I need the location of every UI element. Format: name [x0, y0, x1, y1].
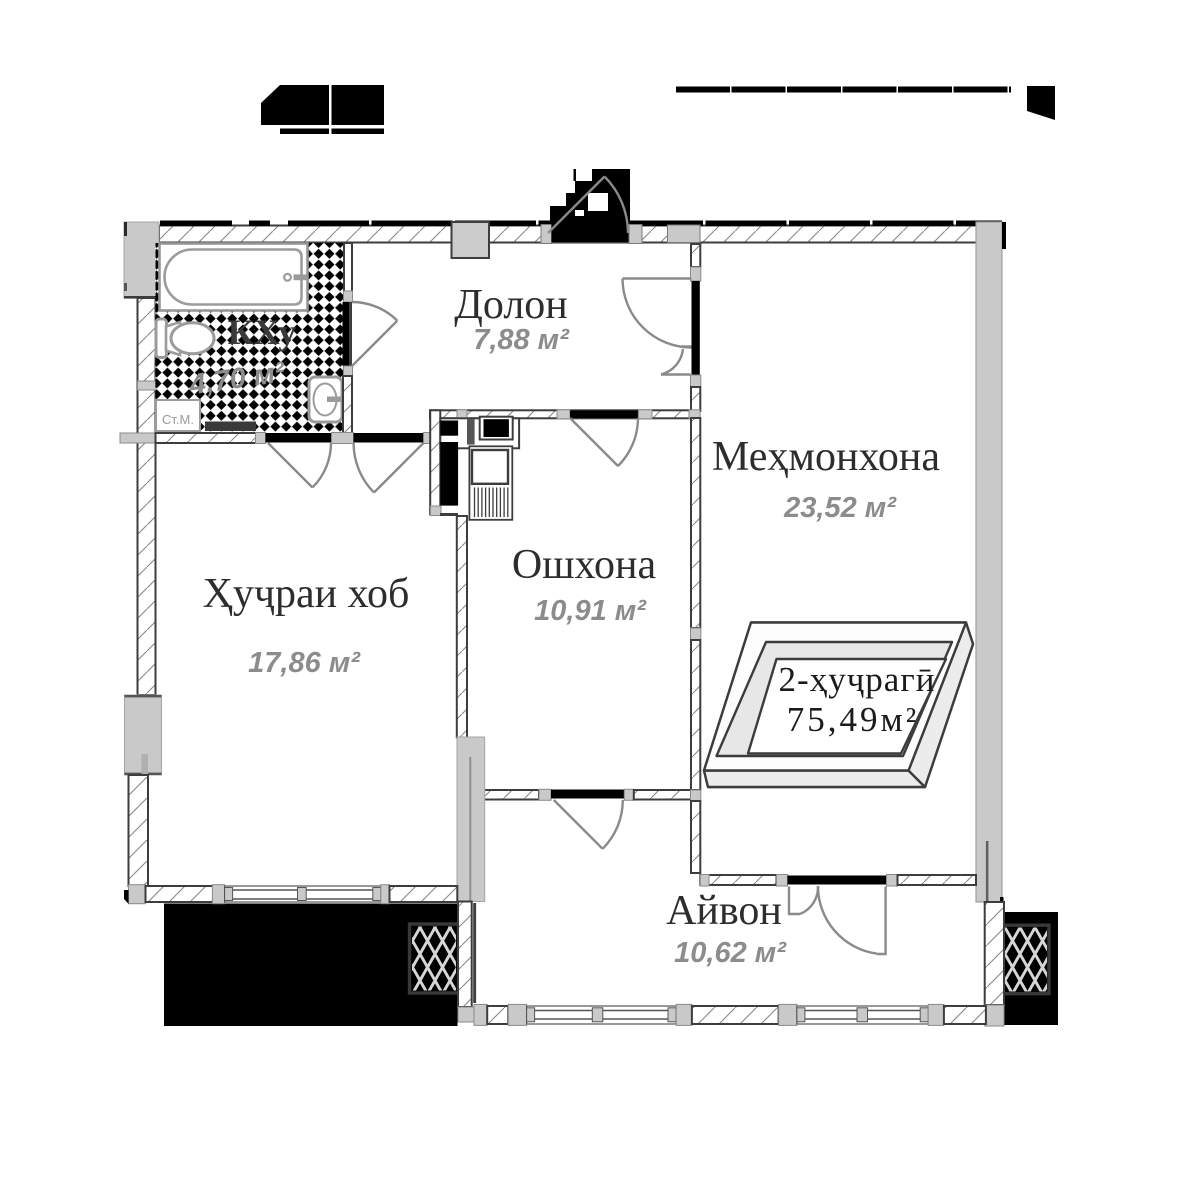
svg-text:7,88 м²: 7,88 м² [473, 324, 570, 356]
svg-text:Айвон: Айвон [666, 888, 782, 934]
svg-text:17,86 м²: 17,86 м² [248, 647, 361, 679]
svg-text:10,62 м²: 10,62 м² [674, 937, 787, 969]
svg-text:Долон: Долон [454, 282, 568, 328]
svg-text:Меҳмонхона: Меҳмонхона [712, 434, 940, 480]
svg-text:2-ҳуҷрагӣ: 2-ҳуҷрагӣ [779, 660, 936, 699]
svg-text:23,52 м²: 23,52 м² [783, 492, 897, 524]
svg-text:75,49м²: 75,49м² [787, 700, 919, 739]
svg-text:Ҳуҷраи хоб: Ҳуҷраи хоб [203, 571, 410, 617]
svg-text:КХу: КХу [228, 312, 297, 352]
svg-text:10,91 м²: 10,91 м² [534, 595, 647, 627]
svg-text:Ст.М.: Ст.М. [162, 412, 194, 427]
svg-text:Ошхона: Ошхона [512, 542, 657, 588]
